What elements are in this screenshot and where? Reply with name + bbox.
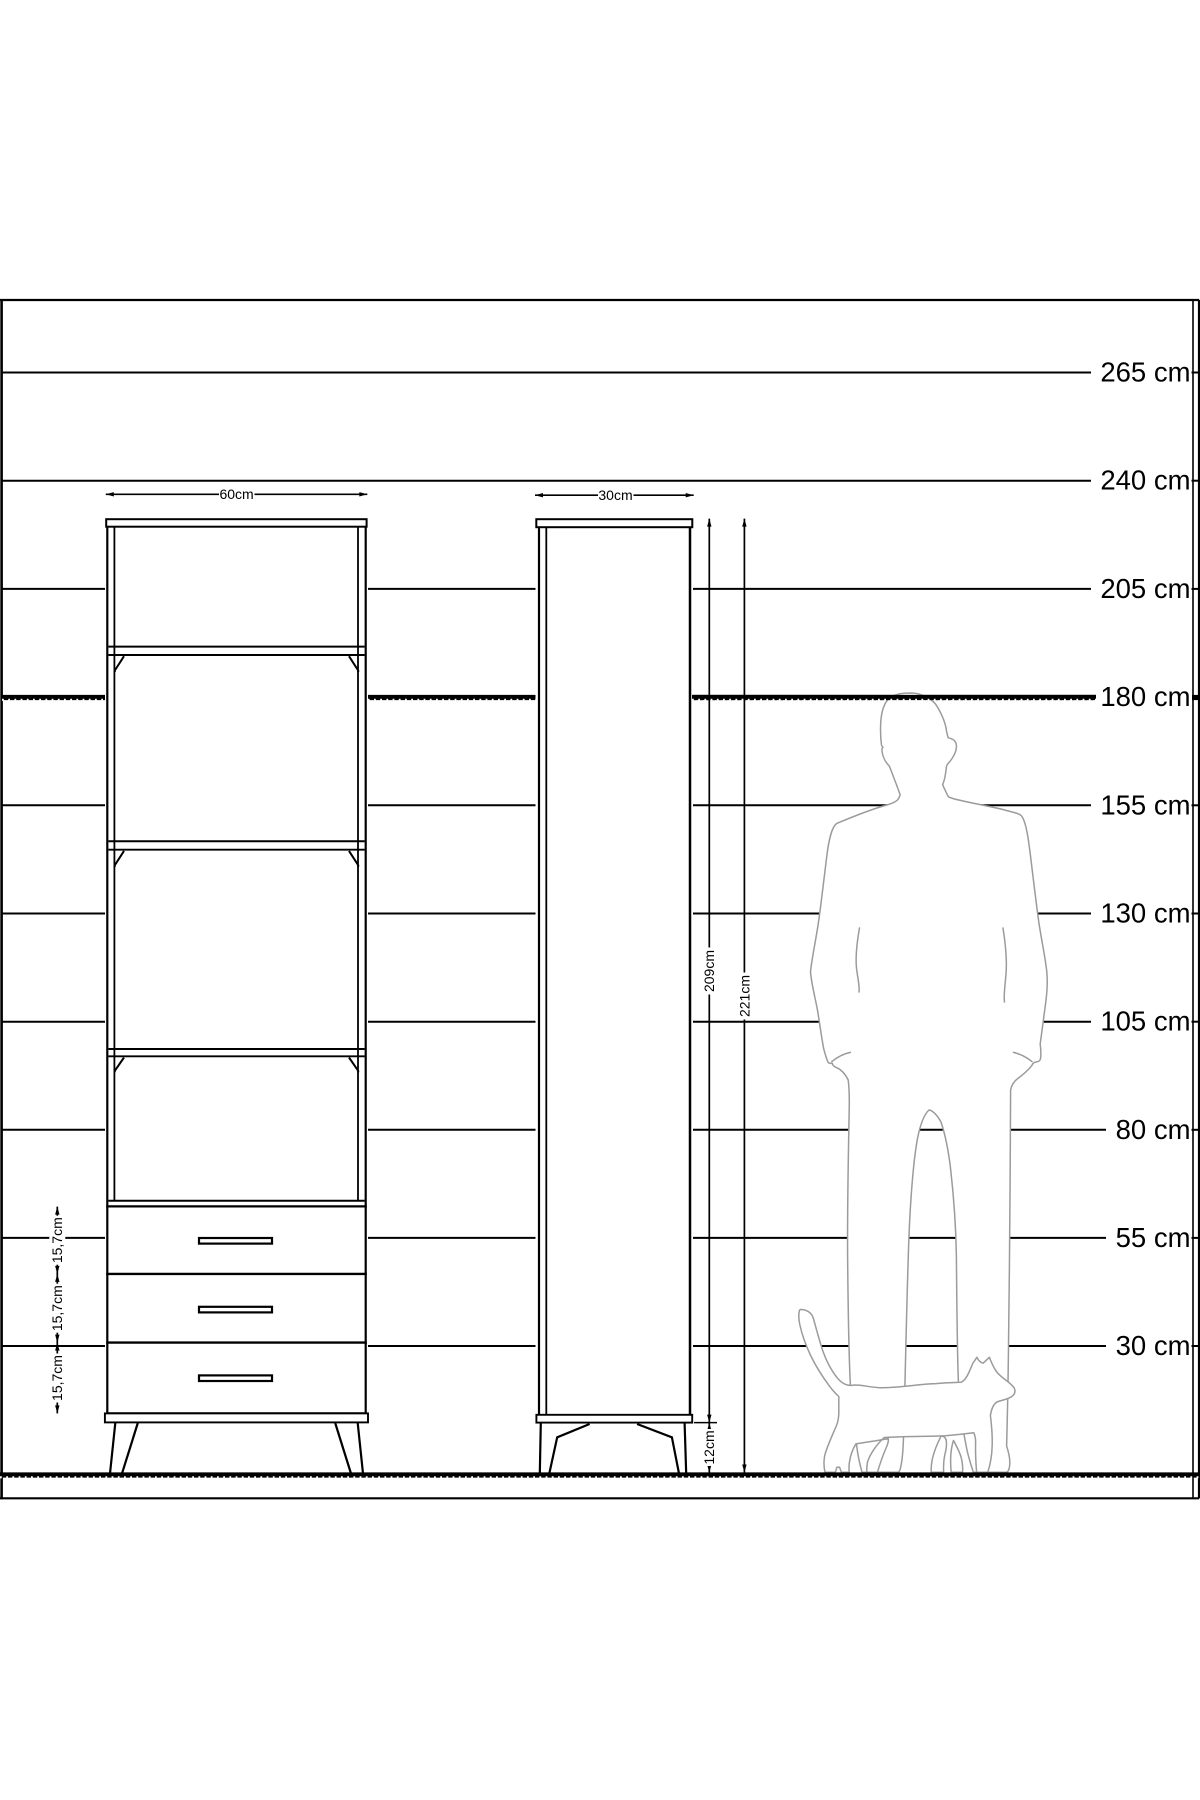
- svg-text:12cm: 12cm: [701, 1430, 717, 1464]
- svg-text:221cm: 221cm: [736, 975, 752, 1017]
- svg-text:30 cm: 30 cm: [1116, 1330, 1191, 1361]
- svg-text:80 cm: 80 cm: [1116, 1114, 1191, 1145]
- svg-text:15,7cm: 15,7cm: [49, 1285, 65, 1331]
- svg-text:15,7cm: 15,7cm: [49, 1217, 65, 1263]
- svg-text:55 cm: 55 cm: [1116, 1222, 1191, 1253]
- svg-text:180 cm: 180 cm: [1100, 681, 1190, 712]
- svg-text:130 cm: 130 cm: [1100, 898, 1190, 929]
- svg-text:240 cm: 240 cm: [1100, 465, 1190, 496]
- svg-text:209cm: 209cm: [701, 950, 717, 992]
- svg-text:105 cm: 105 cm: [1100, 1006, 1190, 1037]
- svg-text:205 cm: 205 cm: [1100, 573, 1190, 604]
- svg-text:155 cm: 155 cm: [1100, 789, 1190, 820]
- svg-text:30cm: 30cm: [598, 487, 632, 503]
- svg-text:60cm: 60cm: [219, 486, 253, 502]
- svg-text:15,7cm: 15,7cm: [49, 1355, 65, 1401]
- svg-text:265 cm: 265 cm: [1100, 357, 1190, 388]
